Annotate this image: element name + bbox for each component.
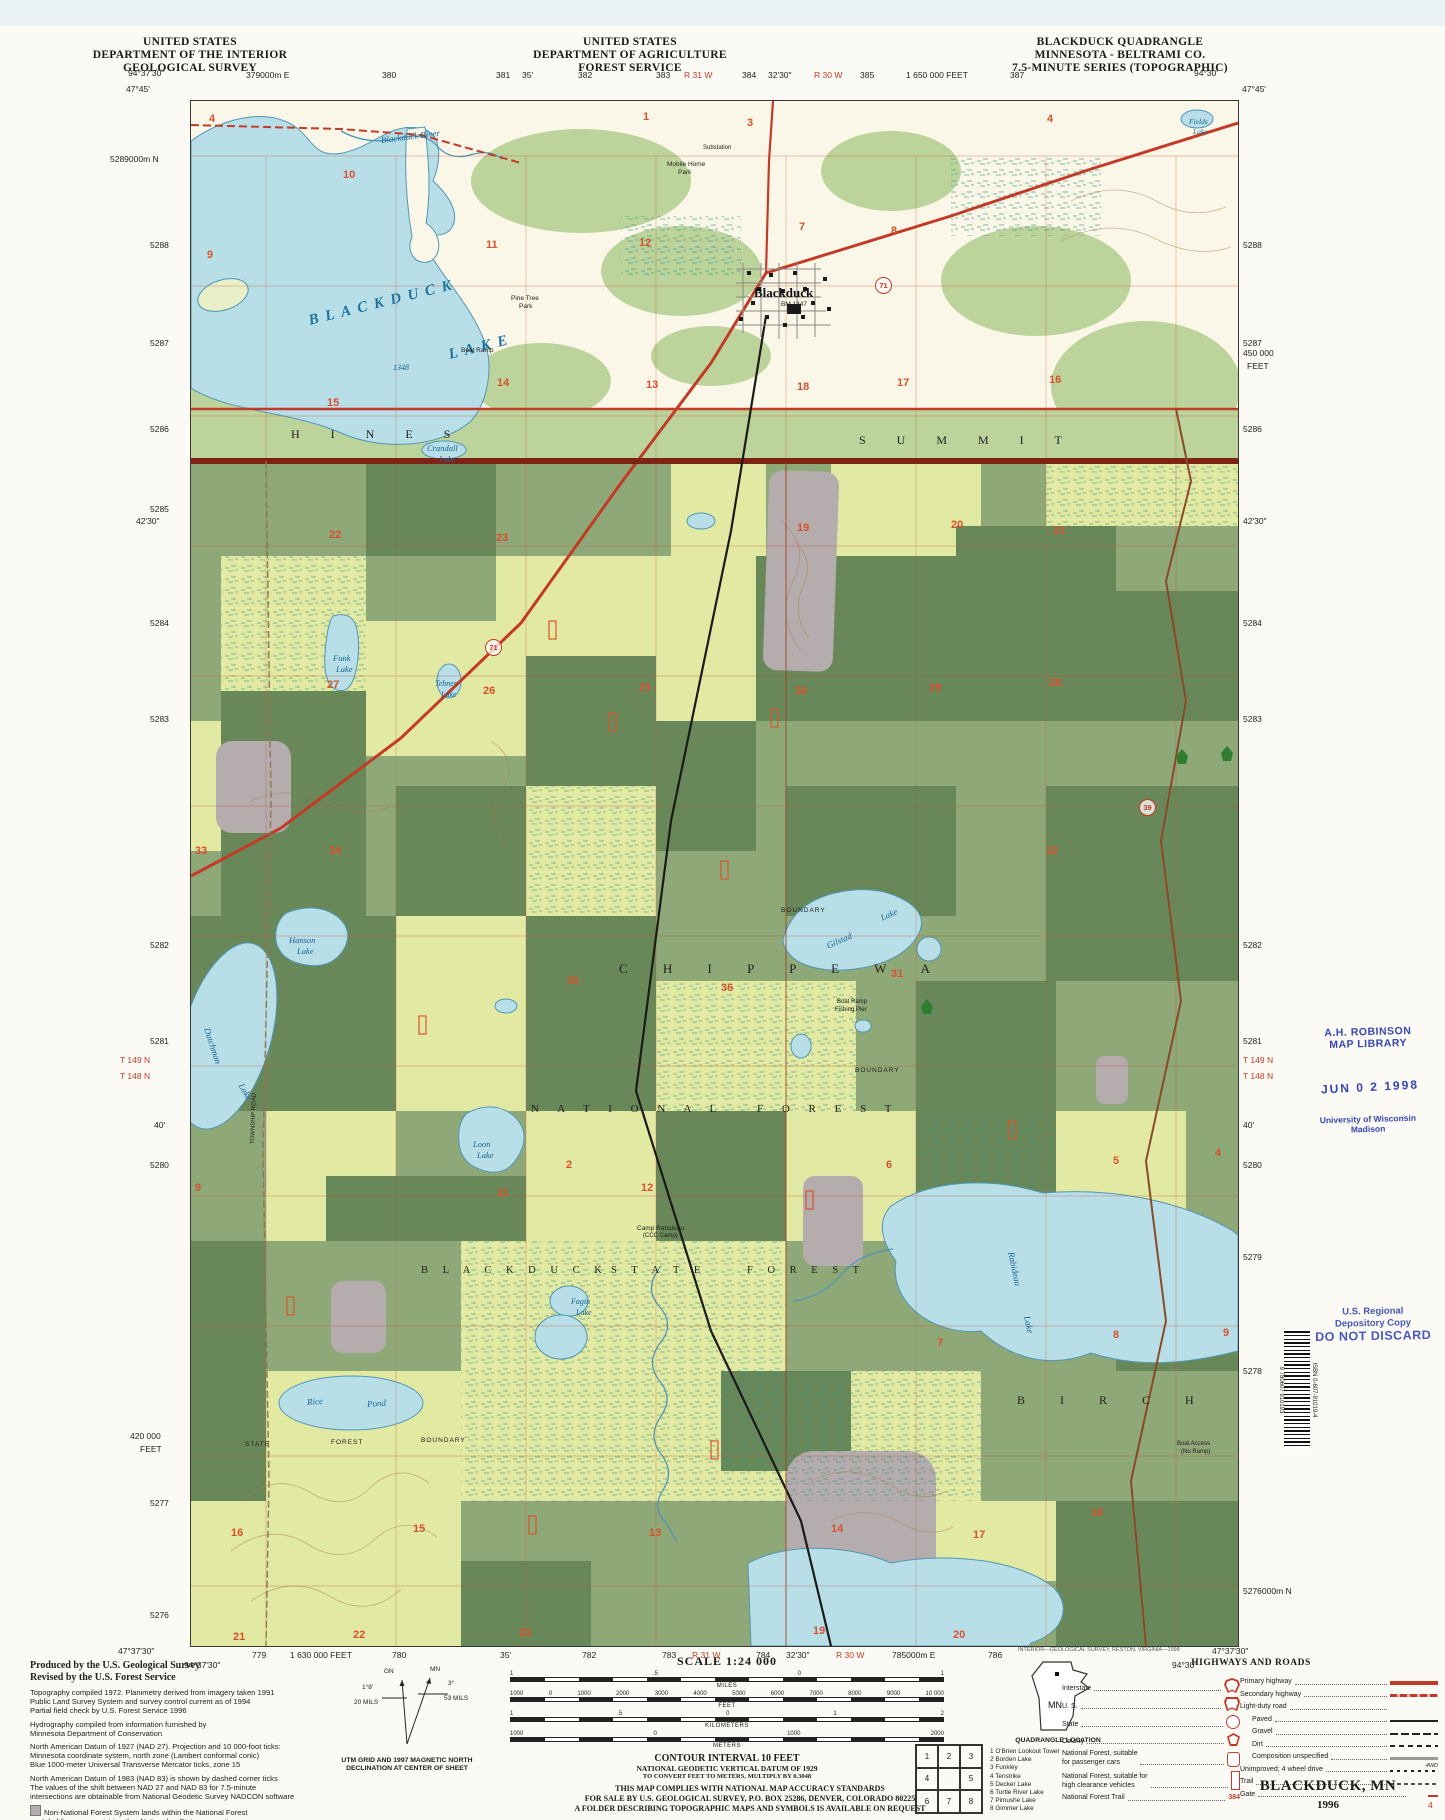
margin-label-left: T 148 N — [120, 1071, 150, 1081]
header-usgs-line3: GEOLOGICAL SURVEY — [40, 62, 340, 75]
date-stamp: JUN 0 2 1998 — [1300, 1076, 1441, 1097]
margin-label-top: 382 — [578, 70, 592, 80]
inholding-swatch — [30, 1805, 41, 1816]
margin-label-right: 42'30" — [1243, 516, 1267, 526]
scale-bar-unit: KILOMETERS — [510, 1723, 944, 1729]
legend-row: Interstate — [1062, 1678, 1240, 1693]
legend-row: Primary highway — [1240, 1678, 1438, 1687]
margin-label-top: 94°37'30" — [128, 68, 164, 78]
margin-label-left: 5287 — [150, 338, 169, 348]
margin-label-bottom: 786 — [988, 1650, 1002, 1660]
quad-series: 7.5-MINUTE SERIES (TOPOGRAPHIC) — [950, 62, 1290, 75]
state-icon — [1226, 1715, 1240, 1729]
quad-title: BLACKDUCK QUADRANGLE — [950, 36, 1290, 49]
margin-label-bottom: 47°37'30" — [118, 1646, 154, 1656]
margin-label-top: 385 — [860, 70, 874, 80]
credit-paragraph: Hydrography compiled from information fu… — [30, 1720, 332, 1738]
declination-caption-1: UTM GRID AND 1997 MAGNETIC NORTH — [322, 1757, 492, 1765]
margin-label-left: T 149 N — [120, 1055, 150, 1065]
scale-bar-rule — [510, 1717, 944, 1722]
margin-label-left: 5288 — [150, 240, 169, 250]
margin-label-bottom: 784 — [756, 1650, 770, 1660]
state-abbrev: MN — [1048, 1700, 1062, 1710]
legend-row: U. S. — [1062, 1697, 1240, 1711]
scale-block: SCALE 1:24 000 1.501MILES100001000200030… — [492, 1654, 962, 1780]
road-sample-dirt — [1390, 1745, 1438, 1747]
road-sample-secondary — [1390, 1694, 1438, 1697]
margin-label-right: 5280 — [1243, 1160, 1262, 1170]
margin-label-bottom: 782 — [582, 1650, 596, 1660]
sheet-title: BLACKDUCK, MN — [1238, 1778, 1418, 1795]
county-icon — [1227, 1733, 1240, 1746]
margin-label-top: 94°30' — [1194, 68, 1218, 78]
road-sample-gravel — [1390, 1733, 1438, 1735]
library-stamp: A.H. ROBINSON MAP LIBRARY — [1288, 1024, 1445, 1052]
mn-label: MN — [430, 1666, 440, 1673]
road-sample-paved — [1390, 1720, 1438, 1722]
header-usgs-line2: DEPARTMENT OF THE INTERIOR — [40, 49, 340, 62]
margin-label-right: 40' — [1243, 1120, 1254, 1130]
margin-label-right: 5283 — [1243, 714, 1262, 724]
fields-lake — [1181, 110, 1213, 128]
legend-row: State — [1062, 1715, 1240, 1729]
funk-lake — [325, 615, 359, 691]
scale-bar-meters: 1000010002000METERS — [510, 1731, 944, 1749]
margin-label-bottom: 32'30" — [786, 1650, 810, 1660]
margin-label-top: 384 — [742, 70, 756, 80]
legend-row: National Forest Trail384 — [1062, 1794, 1240, 1803]
adjoining-cell: 2 — [938, 1745, 960, 1768]
legend-row: County — [1062, 1733, 1240, 1746]
legend-row: Gravel — [1240, 1728, 1438, 1737]
road-sample-unspec — [1390, 1757, 1438, 1759]
margin-label-top: 47°45' — [1242, 84, 1266, 94]
legend-row: National Forest, suitable for passenger … — [1062, 1750, 1240, 1767]
margin-label-right: T 149 N — [1243, 1055, 1273, 1065]
gn-mils-value: 20 MILS — [354, 1699, 378, 1706]
road-sample-gate — [1428, 1795, 1438, 1798]
interstate-icon — [1224, 1678, 1240, 1693]
margin-label-right: 5286 — [1243, 424, 1262, 434]
margin-label-left: 5281 — [150, 1036, 169, 1046]
gn-label: GN — [384, 1668, 394, 1675]
small-pond-4 — [855, 1020, 871, 1032]
margin-label-bottom: 47°37'30" — [1212, 1646, 1248, 1656]
barcode-digits: 9 780607 910193 — [1278, 1331, 1284, 1449]
margin-label-left: 5289000m N — [110, 154, 159, 164]
margin-label-left: 42'30" — [136, 516, 160, 526]
credit-heading: Produced by the U.S. Geological Survey — [30, 1660, 332, 1672]
isbn-text: ISBN 0-607-91019-4 — [1311, 1331, 1317, 1449]
declination-art — [322, 1672, 492, 1750]
scan-edge-tint — [0, 0, 1445, 26]
legend-title: HIGHWAYS AND ROADS — [1062, 1658, 1440, 1668]
scale-bars: 1.501MILES100001000200030004000500060007… — [492, 1671, 962, 1749]
quad-location-dot — [1055, 1672, 1059, 1676]
margin-label-bottom: 779 — [252, 1650, 266, 1660]
mn-mils-value: 53 MILS — [444, 1695, 468, 1702]
mn-declination-value: 3° — [448, 1680, 454, 1687]
credit-heading: Revised by the U.S. Forest Service — [30, 1672, 332, 1684]
margin-label-left: 5285 — [150, 504, 169, 514]
scale-bar-unit: FEET — [510, 1703, 944, 1709]
declination-caption-2: DECLINATION AT CENTER OF SHEET — [322, 1765, 492, 1773]
margin-label-left: FEET — [140, 1444, 162, 1454]
margin-label-left: 40' — [154, 1120, 165, 1130]
university-stamp: University of Wisconsin Madison — [1288, 1112, 1445, 1136]
contour-interval: CONTOUR INTERVAL 10 FEET — [492, 1753, 962, 1764]
margin-label-right: T 148 N — [1243, 1071, 1273, 1081]
contour-interval-block: CONTOUR INTERVAL 10 FEET NATIONAL GEODET… — [492, 1753, 962, 1780]
margin-label-bottom: R 31 W — [692, 1650, 720, 1660]
scale-bar-unit: MILES — [510, 1683, 944, 1689]
sheet-year: 1996 — [1238, 1799, 1418, 1811]
margin-label-left: 5280 — [150, 1160, 169, 1170]
production-credits: Produced by the U.S. Geological Survey R… — [30, 1660, 332, 1820]
adjoining-cell: 7 — [938, 1790, 960, 1813]
margin-label-bottom: 94°37'30" — [184, 1660, 220, 1670]
margin-label-top: R 31 W — [684, 70, 712, 80]
legend-row: Composition unspecified — [1240, 1753, 1438, 1762]
small-pond-2 — [495, 999, 517, 1013]
margin-label-right: 5278 — [1243, 1366, 1262, 1376]
declination-diagram: GN MN 1°8' 20 MILS 3° 53 MILS UTM GRID A… — [322, 1672, 492, 1773]
margin-label-bottom: 780 — [392, 1650, 406, 1660]
rice-pond — [279, 1376, 423, 1430]
scale-bar-rule — [510, 1697, 944, 1702]
margin-label-right: 5287 — [1243, 338, 1262, 348]
loon-lake — [459, 1107, 524, 1172]
margin-label-right: 450 000 — [1243, 348, 1274, 358]
credit-paragraph: North American Datum of 1927 (NAD 27). P… — [30, 1742, 332, 1770]
credit-paragraph: Non-National Forest System lands within … — [30, 1805, 332, 1820]
margin-label-top: 381 — [496, 70, 510, 80]
small-pond-1 — [687, 513, 715, 529]
margin-label-right: FEET — [1247, 361, 1269, 371]
adjoining-cell: 1 — [916, 1745, 938, 1768]
margin-label-right: 5276000m N — [1243, 1586, 1292, 1596]
fagin-lake-n — [550, 1286, 588, 1316]
margin-label-left: 5286 — [150, 424, 169, 434]
road-sample-primary — [1390, 1681, 1438, 1685]
margin-label-top: 379000m E — [246, 70, 289, 80]
legend-row: Paved — [1240, 1716, 1438, 1725]
margin-label-top: 380 — [382, 70, 396, 80]
crandall-lake — [422, 441, 466, 459]
margin-label-left: 5284 — [150, 618, 169, 628]
adjoining-quads-grid: 12345678 — [915, 1744, 983, 1814]
margin-label-right: 5279 — [1243, 1252, 1262, 1262]
margin-label-right: 5281 — [1243, 1036, 1262, 1046]
header-usgs-line1: UNITED STATES — [40, 36, 340, 49]
adjoining-cell: 5 — [960, 1768, 982, 1791]
margin-label-left: 5277 — [150, 1498, 169, 1508]
margin-label-top: 35' — [522, 70, 533, 80]
scale-bar-rule — [510, 1677, 944, 1682]
margin-label-bottom: 783 — [662, 1650, 676, 1660]
margin-label-top: 32'30" — [768, 70, 792, 80]
margin-label-bottom: 4 — [1428, 1800, 1433, 1810]
vertical-datum: NATIONAL GEODETIC VERTICAL DATUM OF 1929 — [492, 1764, 962, 1773]
margin-label-top: 1 650 000 FEET — [906, 70, 968, 80]
isbn-barcode: ISBN 0-607-91019-4 9 780607 910193 — [1273, 1331, 1317, 1449]
header-usgs: UNITED STATES DEPARTMENT OF THE INTERIOR… — [40, 36, 340, 75]
nfcar-icon — [1227, 1752, 1240, 1767]
margin-label-left: 420 000 — [130, 1431, 161, 1441]
margin-label-bottom: R 30 W — [836, 1650, 864, 1660]
credit-paragraph: North American Datum of 1983 (NAD 83) is… — [30, 1774, 332, 1802]
legend-left-column: InterstateU. S.StateCountyNational Fores… — [1062, 1674, 1240, 1807]
legend-row: Secondary highway — [1240, 1691, 1438, 1700]
hanson-lake — [276, 908, 348, 966]
quad-state-county: MINNESOTA - BELTRAMI CO. — [950, 49, 1290, 62]
adjoining-cell: 6 — [916, 1790, 938, 1813]
margin-label-bottom: 785000m E — [892, 1650, 935, 1660]
credit-paragraph: Topography compiled 1972. Planimetry der… — [30, 1688, 332, 1716]
us-icon — [1224, 1697, 1240, 1711]
margin-label-right: 5288 — [1243, 240, 1262, 250]
margin-label-left: 5276 — [150, 1610, 169, 1620]
map-artwork — [191, 101, 1238, 1646]
adjoining-cell — [938, 1768, 960, 1791]
margin-label-left: 5282 — [150, 940, 169, 950]
map-body: BLACKDUCKLAKE1348Blackduck RiverCrandall… — [190, 100, 1239, 1647]
legend-row: Unimproved; 4 wheel drive4WD — [1240, 1766, 1438, 1775]
adjoining-cell: 4 — [916, 1768, 938, 1791]
legend-row: Light-duty road — [1240, 1703, 1438, 1712]
legend-row: National Forest, suitable for high clear… — [1062, 1771, 1240, 1790]
margin-label-right: 5284 — [1243, 618, 1262, 628]
scale-bar-unit: METERS — [510, 1743, 944, 1749]
header-usda-line1: UNITED STATES — [480, 36, 780, 49]
small-pond-3 — [791, 1034, 811, 1058]
legend-row: Dirt — [1240, 1741, 1438, 1750]
fagin-lake-s — [535, 1315, 587, 1359]
margin-label-top: 47°45' — [126, 84, 150, 94]
margin-label-bottom: 1 630 000 FEET — [290, 1650, 352, 1660]
margin-label-left: 5283 — [150, 714, 169, 724]
header-quadrangle: BLACKDUCK QUADRANGLE MINNESOTA - BELTRAM… — [950, 36, 1290, 75]
header-usda-line2: DEPARTMENT OF AGRICULTURE — [480, 49, 780, 62]
margin-label-bottom: 35' — [500, 1650, 511, 1660]
margin-label-bottom: INTERIOR—GEOLOGICAL SURVEY, RESTON, VIRG… — [1018, 1647, 1180, 1653]
scale-bar-kilometers: 1.5012KILOMETERS — [510, 1711, 944, 1729]
gn-declination-value: 1°8' — [362, 1684, 373, 1691]
feet-to-meters-note: TO CONVERT FEET TO METERS, MULTIPLY BY 0… — [492, 1773, 962, 1780]
margin-label-top: 383 — [656, 70, 670, 80]
swamp-texture — [951, 156, 1101, 236]
scale-bar-rule — [510, 1737, 944, 1742]
margin-label-top: 387 — [1010, 70, 1024, 80]
barcode-bars — [1284, 1331, 1310, 1449]
scale-bar-feet: 1000010002000300040005000600070008000900… — [510, 1691, 944, 1709]
swamp-texture — [621, 216, 741, 276]
margin-label-bottom: 94°30' — [1172, 1660, 1196, 1670]
margin-label-right: 5282 — [1243, 940, 1262, 950]
little-gilstad-lake — [917, 937, 941, 961]
road-sample-fourwd: 4WD — [1390, 1770, 1438, 1772]
margin-label-top: R 30 W — [814, 70, 842, 80]
scale-bar-miles: 1.501MILES — [510, 1671, 944, 1689]
adjoining-name: 8 Gimmer Lake — [990, 1805, 1140, 1813]
map-sheet-page: UNITED STATES DEPARTMENT OF THE INTERIOR… — [0, 0, 1445, 1820]
adjoining-cell: 3 — [960, 1745, 982, 1768]
adjoining-cell: 8 — [960, 1790, 982, 1813]
